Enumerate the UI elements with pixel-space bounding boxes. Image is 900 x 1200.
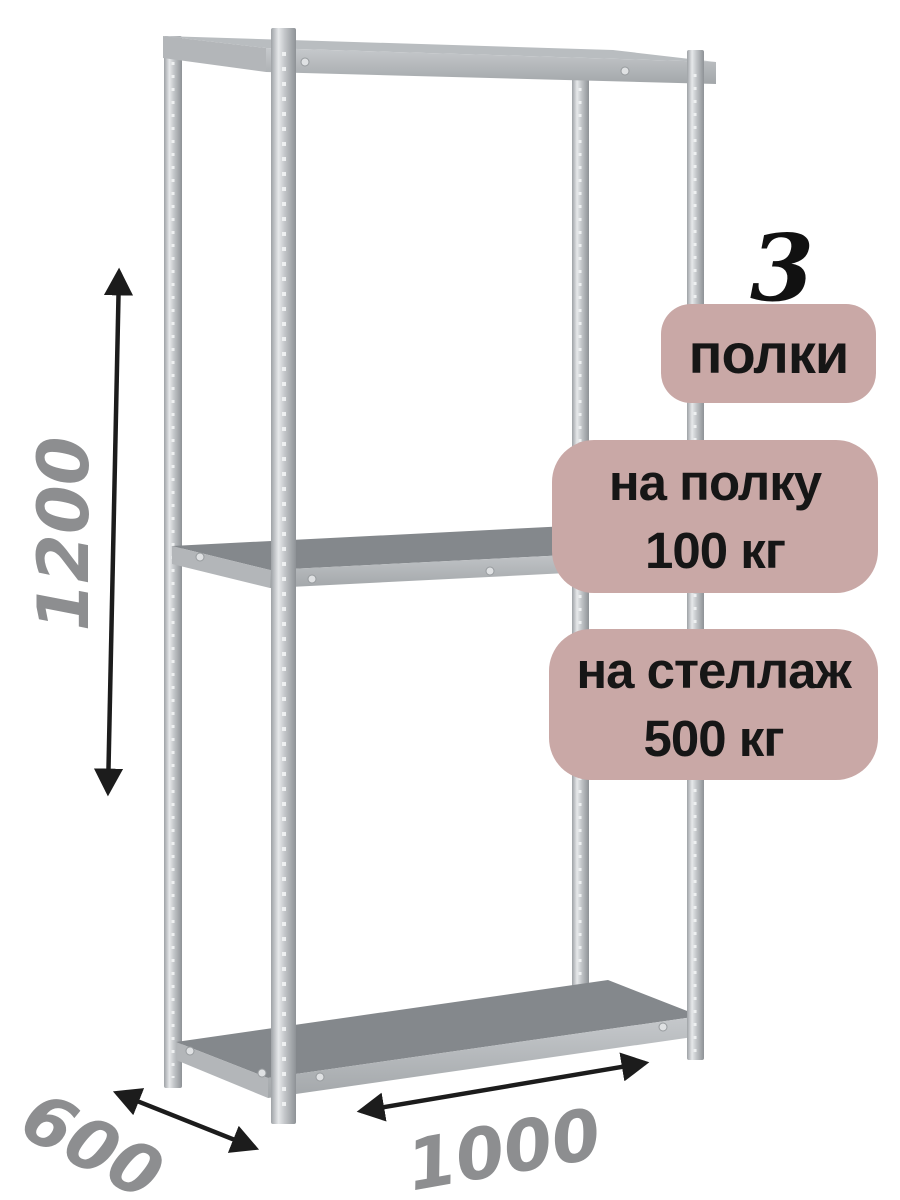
badge-rack-load: на стеллаж 500 кг	[549, 629, 878, 780]
bolt	[486, 567, 494, 575]
bolt	[186, 1047, 194, 1055]
shelf-top	[163, 36, 716, 84]
shelf-bottom	[176, 980, 700, 1098]
height-arrow	[108, 272, 119, 792]
bolt	[621, 67, 629, 75]
bolt	[258, 1069, 266, 1077]
depth-dimension-label: 600	[8, 1075, 176, 1200]
bolt	[659, 1023, 667, 1031]
badge-shelf-count: полки	[661, 304, 876, 403]
shelf-count-number: 3	[737, 222, 827, 314]
height-dimension-label: 1200	[23, 437, 105, 632]
rack-illustration: 1200 600 1000	[0, 0, 900, 1200]
bolt	[316, 1073, 324, 1081]
badge-shelf-count-label: полки	[689, 321, 849, 386]
badge-rack-load-line1: на стеллаж	[576, 637, 850, 704]
post-front-left	[271, 28, 296, 1124]
bolt	[301, 58, 309, 66]
bolt	[196, 553, 204, 561]
product-image: 1200 600 1000 3 полки на полку 100 кг на…	[0, 0, 900, 1200]
bolt	[308, 575, 316, 583]
badge-shelf-load-line1: на полку	[609, 449, 821, 516]
badge-rack-load-line2: 500 кг	[643, 705, 783, 772]
badge-shelf-load-line2: 100 кг	[645, 517, 785, 584]
badge-shelf-load: на полку 100 кг	[552, 440, 878, 593]
width-dimension-label: 1000	[401, 1093, 607, 1200]
